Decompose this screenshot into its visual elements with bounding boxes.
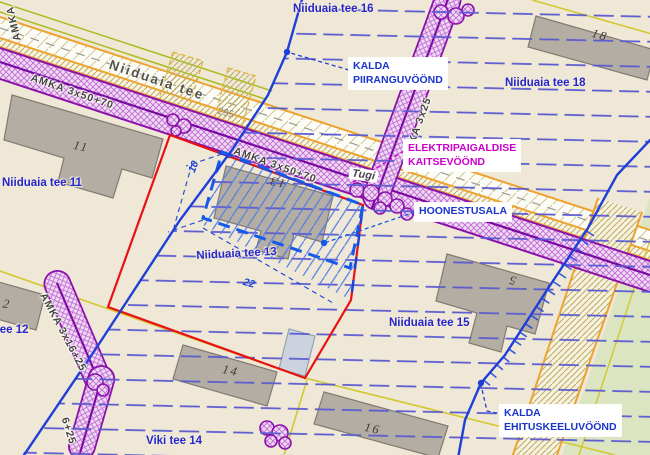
node-dot	[284, 49, 290, 55]
node-dot	[478, 380, 484, 386]
map-canvas	[0, 0, 650, 455]
pole-icon	[171, 126, 181, 136]
node-dot	[321, 240, 327, 246]
detail-plan-map: Niiduaia tee 295 Niiduaia tee 16 Niiduai…	[0, 0, 650, 455]
